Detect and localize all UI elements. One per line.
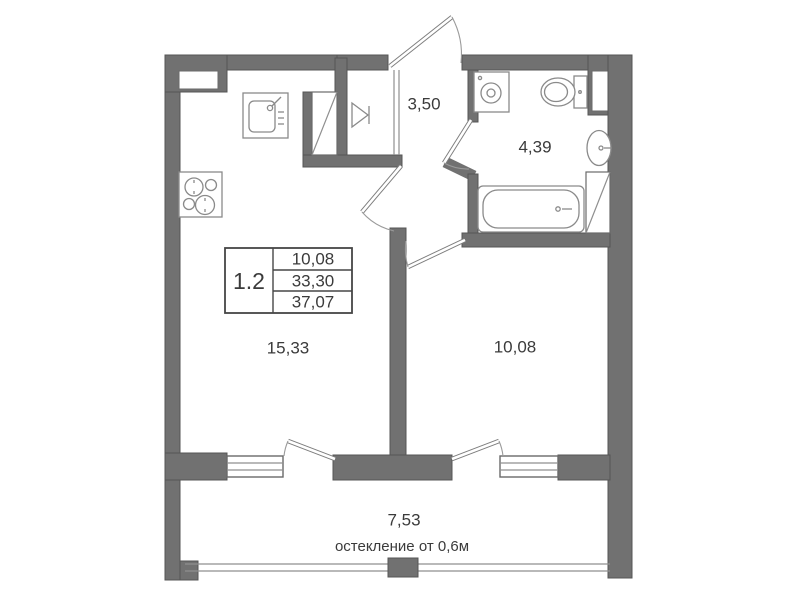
hallway-area-label: 3,50 — [407, 94, 440, 113]
balcony-center-post — [388, 558, 418, 577]
unit-number: 1.2 — [233, 268, 265, 294]
shaft-side-strip — [303, 92, 312, 155]
unit-table-value-2: 33,30 — [292, 271, 335, 290]
top-wall-kitchen — [227, 55, 337, 70]
balcony-door-left-leaf-inner — [288, 441, 335, 459]
right-wall — [608, 55, 632, 578]
left-wall — [165, 55, 180, 580]
balcony-door-left — [284, 441, 335, 459]
bathroom-area-label: 4,39 — [518, 137, 551, 156]
balcony-door-right-leaf-inner — [452, 441, 499, 459]
bathroom-left-wall-bottom — [468, 174, 478, 235]
window-left-frame — [227, 456, 283, 477]
kitchen-vent-shaft — [312, 92, 337, 155]
washing-machine-door-inner — [487, 89, 495, 97]
wardrobe-triangle-icon — [352, 103, 368, 127]
washbasin — [587, 131, 612, 166]
balcony-glazing — [185, 558, 610, 577]
bottom-center-block — [333, 455, 452, 480]
hall-living-wall — [303, 155, 402, 167]
kitchen-wall-niche — [179, 71, 218, 89]
kitchen-faucet-base — [267, 105, 272, 110]
stove — [179, 172, 222, 217]
toilet-tank — [574, 76, 587, 108]
entrance-door-arc — [452, 17, 461, 63]
bottom-left-block — [165, 453, 227, 480]
balcony-door-left-arc — [284, 441, 288, 456]
unit-table-value-3: 37,07 — [292, 292, 335, 311]
balcony-glazing-note: остекление от 0,6м — [335, 538, 469, 555]
room-partition-wall — [390, 228, 406, 455]
window-left — [227, 456, 283, 477]
bedroom-door-leaf-inner — [408, 240, 465, 267]
wardrobe — [352, 70, 399, 155]
bathtub — [478, 186, 584, 232]
living-kitchen-area-label: 15,33 — [267, 338, 310, 357]
living-room-door-arc — [362, 212, 394, 231]
bathroom-vent-shaft — [586, 172, 610, 233]
entrance-door-leaf-inner — [390, 17, 452, 66]
window-right-frame — [500, 456, 558, 477]
unit-table-value-1: 10,08 — [292, 249, 335, 268]
balcony-area-label: 7,53 — [387, 510, 420, 529]
kitchen-sink — [243, 93, 288, 138]
floor-plan-drawing: 1.2 10,08 33,30 37,07 3,50 4,39 10,08 15… — [0, 0, 799, 600]
bedroom-door — [405, 240, 465, 267]
bathroom-door-leaf-inner — [444, 120, 471, 163]
living-room-door-leaf-inner — [362, 166, 401, 212]
stove-burner-3 — [184, 199, 195, 210]
entrance-door — [390, 17, 461, 66]
balcony-door-right-arc — [499, 441, 503, 456]
living-room-door — [362, 166, 401, 231]
floor-plan: 1.2 10,08 33,30 37,07 3,50 4,39 10,08 15… — [0, 0, 799, 600]
bedroom-area-label: 10,08 — [494, 337, 537, 356]
window-right — [500, 456, 558, 477]
washing-machine — [474, 72, 509, 112]
stove-burner-2 — [206, 180, 217, 191]
info-table: 1.2 10,08 33,30 37,07 — [225, 248, 352, 313]
balcony-door-right — [452, 441, 503, 459]
toilet — [541, 76, 587, 108]
bedroom-top-wall — [462, 233, 610, 247]
bottom-right-block — [558, 455, 610, 480]
